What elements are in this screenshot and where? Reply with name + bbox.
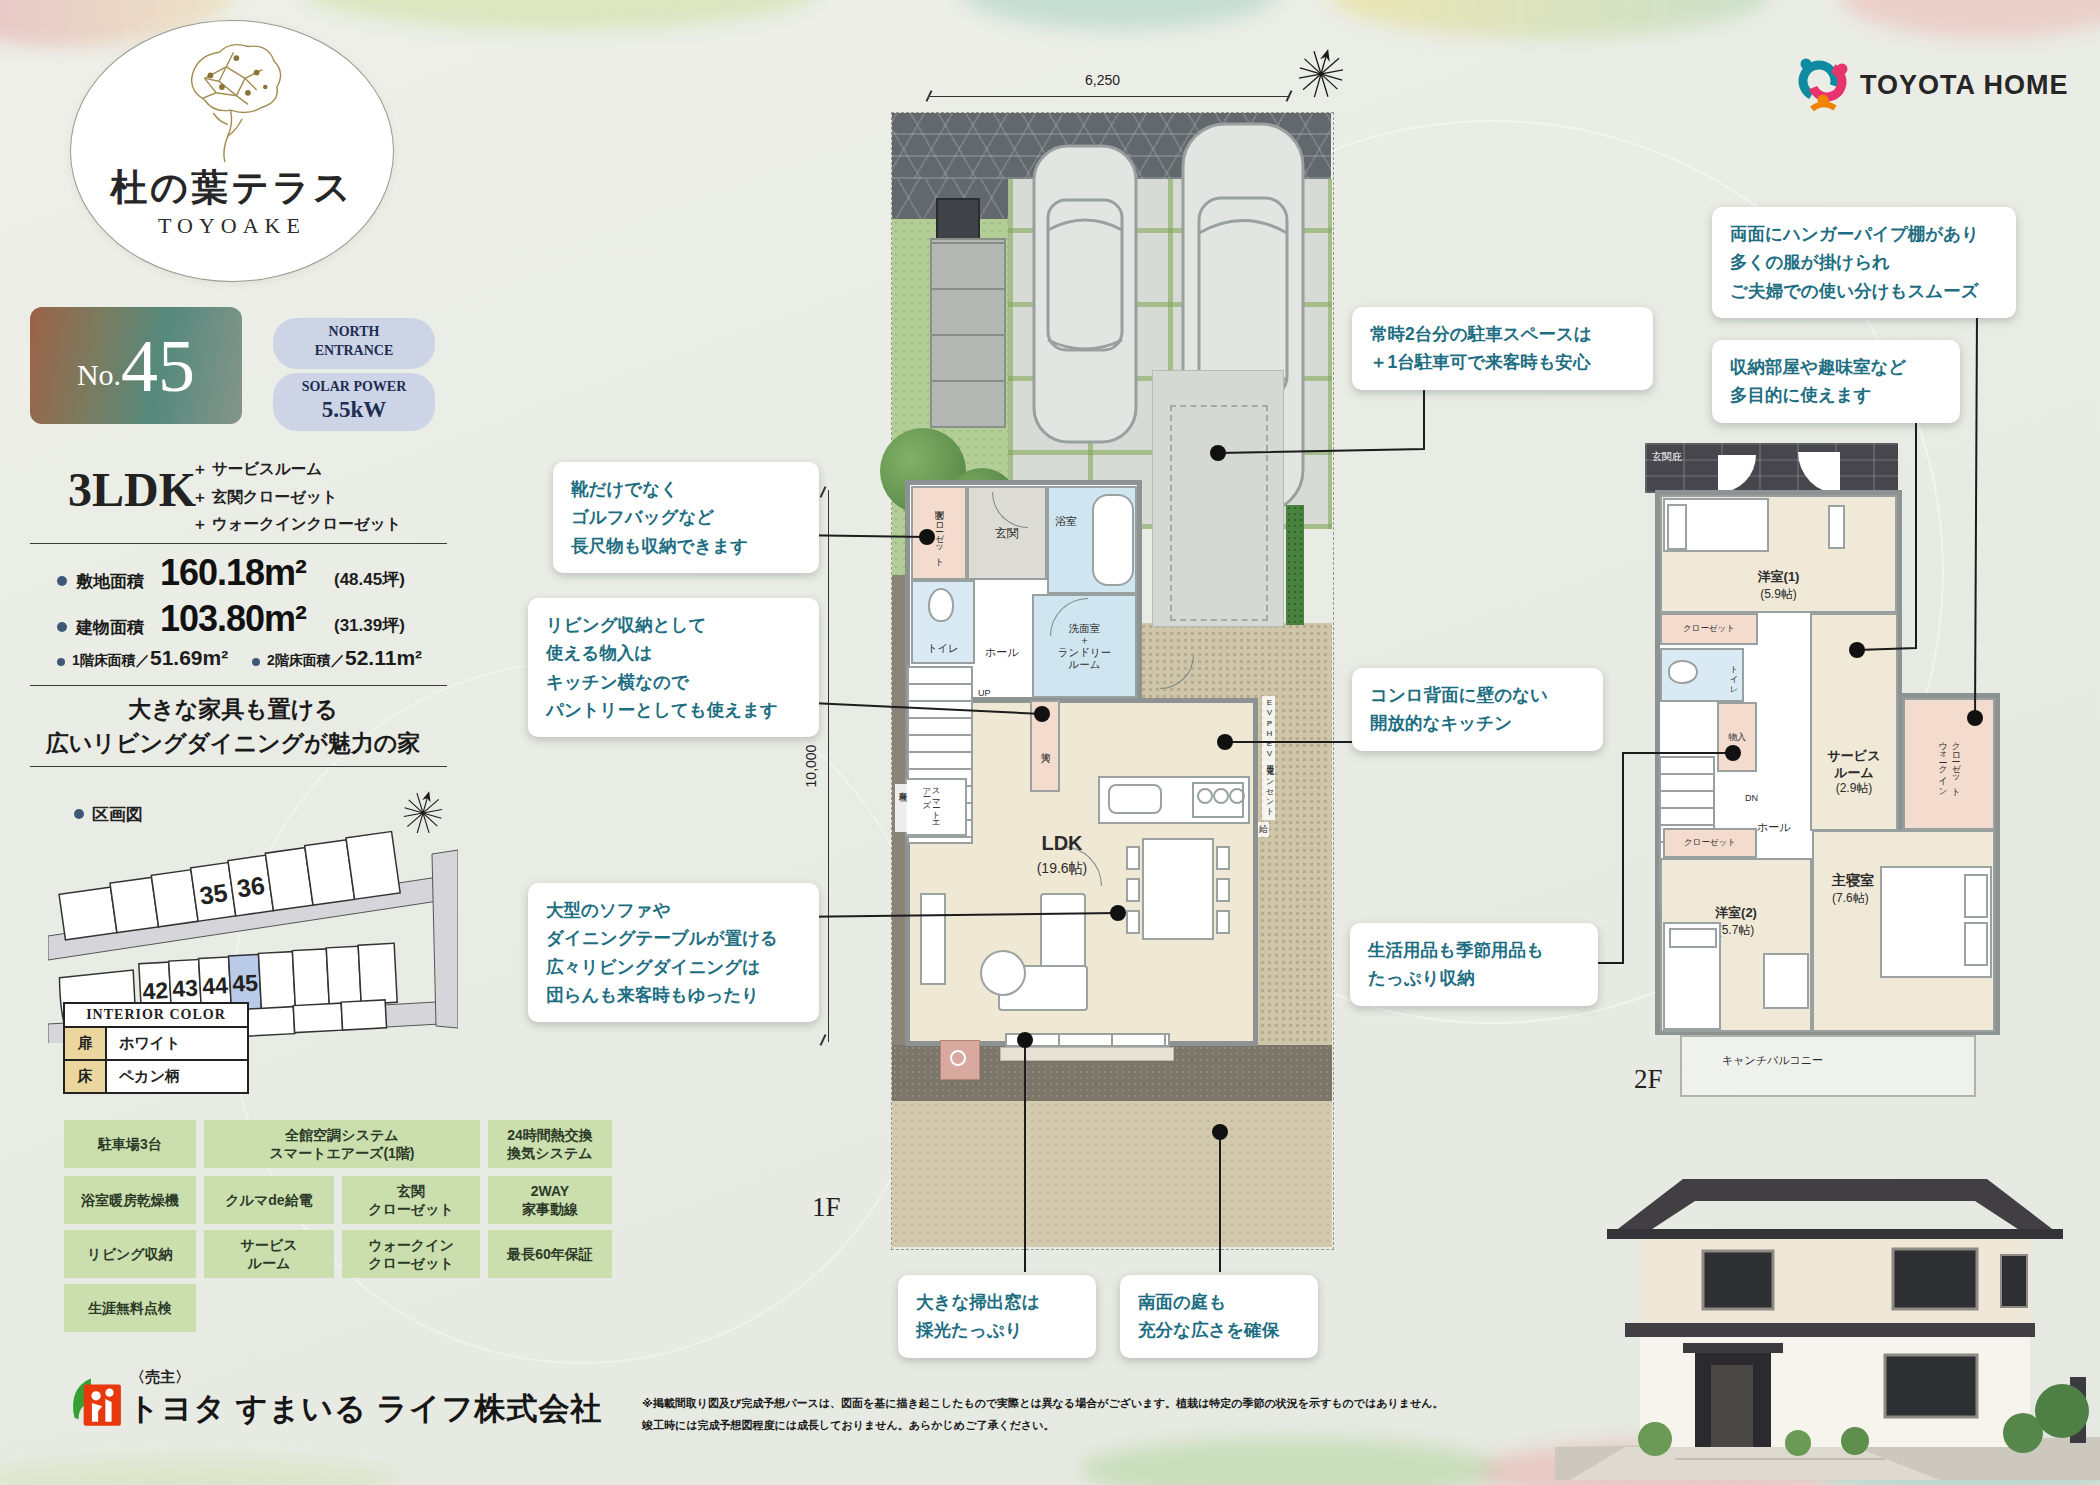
floor2-area-label: 2階床面積／ [267,652,345,670]
dim-line-top [930,96,1290,97]
room-closet2: クローゼット [1663,828,1757,858]
interior-val-floor: ペカン柄 [107,1061,247,1092]
callout-hanger-pipe: 両面にハンガーパイプ棚があり 多くの服が掛けられ ご夫婦での使い分けもスムーズ [1712,207,2016,318]
feature-text: クルマde給電 [225,1191,312,1209]
seller-label: 〈売主〉 [130,1368,190,1387]
divider [30,685,447,686]
garden-south [892,1101,1332,1247]
garden-gravel-dark [892,1045,1332,1101]
seller-company: トヨタ すまいる ライフ株式会社 [128,1388,603,1430]
planter-box [936,198,980,242]
room-label: 物入 [1728,731,1746,744]
callout-storage-2f: 生活用品も季節用品も たっぷり収納 [1350,923,1598,1006]
room-label-ldk-size: (19.6帖) [1022,860,1102,878]
feature-text: クローゼット [368,1200,454,1218]
callout-line: キッチン横なので [546,668,801,696]
project-logo-circle: 杜の葉テラス TOYOAKE [70,20,394,282]
building-area-label: 建物面積 [76,616,144,639]
floor1-area-label: 1階床面積／ [72,652,150,670]
room-label: サービス [1828,748,1881,765]
feature-text: 生涯無料点検 [88,1299,172,1317]
floor2-area-value: 52.11m² [345,646,422,670]
building-area-tsubo: (31.39坪) [334,614,405,637]
bed-single [1663,498,1769,552]
room-label: 玄関クローゼット [933,503,946,562]
watercolor-blob [0,1458,400,1485]
interior-key-floor: 床 [65,1061,107,1092]
watercolor-blob [960,0,1280,30]
callout-line: 広々リビングダイニングは [546,953,801,981]
room-label: ウォークイン [1936,735,1949,792]
flyer-page: { "colors":{"teal_text":"#1e6e82","pill_… [0,0,2100,1485]
terrace-step [1000,1047,1174,1061]
outdoor-tap-circle [950,1050,966,1066]
room-genkan-closet: 玄関クローゼット [911,486,967,580]
bullet-icon [74,809,84,819]
feature-cell: 全館空調システムスマートエアーズ(1階) [204,1120,480,1168]
room-label: (2.9帖) [1836,781,1873,797]
callout-line: ご夫婦での使い分けもスムーズ [1730,277,1998,305]
label-dn: DN [1745,793,1758,803]
road-pavement [892,179,1008,219]
callout-line: 多くの服が掛けられ [1730,248,1998,276]
feature-text: リビング収納 [87,1245,172,1263]
label-smart-airs: スマートエアーズ [922,782,941,834]
feature-cell: 駐車場3台 [64,1120,196,1168]
bed-double [1880,866,1992,978]
callout-line: 開放的なキッチン [1370,709,1585,737]
guest-parking-pad [1152,370,1284,627]
room-label: トイレ [927,642,959,656]
pill-line: 5.5kW [273,396,435,424]
floor-tag-2f: 2F [1634,1064,1663,1095]
room-label: 浴室 [1055,514,1077,529]
plan-type: 3LDK [68,462,196,517]
feature-cell: 生涯無料点検 [64,1284,196,1332]
feature-cell: サービスルーム [204,1230,334,1278]
callout-line: リビング収納として [546,611,801,639]
watercolor-blob [1480,1442,1840,1485]
dining-chair [1126,910,1140,934]
room-wic: ウォークイン クローゼット [1903,698,1995,830]
feature-text: 2WAY [531,1182,569,1200]
feature-text: ルーム [248,1254,291,1272]
callout-living-dining: 大型のソファや ダイニングテーブルが置ける 広々リビングダイニングは 団らんも来… [528,883,819,1022]
interior-val-door: ホワイト [107,1028,247,1059]
feature-cell: 浴室暖房乾燥機 [64,1176,196,1224]
feature-text: 玄関 [397,1182,425,1200]
room-closet1: クローゼット [1660,613,1758,645]
watercolor-blob [300,0,820,30]
interior-key-door: 扉 [65,1028,107,1059]
callout-line: 大型のソファや [546,896,801,924]
dim-tick [820,486,827,498]
dining-chair [1216,846,1230,870]
disclaimer-line2: 竣工時には完成予想図程度には成長しておりません。あらかじめご了承ください。 [642,1418,2072,1433]
watercolor-blob [1330,0,1770,38]
watercolor-blob [1080,1438,1500,1485]
callout-line: 南面の庭も [1138,1288,1300,1316]
room-label: (7.6帖) [1832,890,1869,907]
feature-text: スマートエアーズ(1階) [269,1144,414,1162]
dining-chair [1216,910,1230,934]
callout-service-room: 収納部屋や趣味室など 多目的に使えます [1712,340,1960,423]
lot-number: 35 [198,878,230,910]
callout-window: 大きな掃出窓は 採光たっぷり [898,1275,1096,1358]
room-label: 玄関 [995,525,1019,542]
feature-cell: 2WAY家事動線 [488,1176,612,1224]
compass-icon [1292,43,1351,106]
room-label: トイレ [1727,660,1738,690]
callout-line: 採光たっぷり [916,1316,1078,1344]
dining-chair [1126,846,1140,870]
room-label: ルーム [1834,765,1874,782]
parking-pavers [1008,179,1332,529]
bullet-icon [252,658,260,666]
room-label: (5.7帖) [1718,922,1755,939]
dim-tick [1286,90,1293,102]
room-label: 物入 [1039,745,1052,747]
unit-number-prefix: No. [77,358,121,392]
floor-tag-1f: 1F [812,1192,841,1223]
callout-line: 両面にハンガーパイプ棚があり [1730,220,1998,248]
room-label-ldk: LDK [1030,832,1094,855]
toyota-home-mark-icon [1793,52,1851,112]
callout-line: コンロ背面に壁のない [1370,681,1585,709]
feature-cell: 24時間熱交換換気システム [488,1120,612,1168]
door-arc [1160,655,1194,689]
seller-logo-icon [66,1372,122,1432]
lot-number: 45 [232,969,259,996]
unit-number-value: 45 [121,329,195,403]
label-balcony: キャンチバルコニー [1722,1053,1823,1068]
feature-cell: ウォークインクローゼット [342,1230,480,1278]
project-title: 杜の葉テラス [71,163,393,213]
car-top-view [1026,140,1144,450]
room-label: 洋室(1) [1758,568,1800,586]
label-hall-2f: ホール [1757,820,1791,835]
callout-line: ＋1台駐車可で来客時も安心 [1370,348,1635,376]
bullet-icon [57,658,65,666]
toyota-home-logotype: TOYOTA HOME [1860,70,2069,101]
feature-text: 24時間熱交換 [507,1126,593,1144]
building-area-value: 103.80m² [160,598,306,640]
bullet-icon [57,576,67,586]
dim-tick [820,1034,827,1046]
table-row: 扉 ホワイト [65,1028,247,1061]
site-area-value: 160.18m² [160,552,306,594]
feature-text: クローゼット [368,1254,454,1272]
callout-garden: 南面の庭も 充分な広さを確保 [1120,1275,1318,1358]
room-label-hall: ホール [985,645,1019,660]
room-label: (5.9帖) [1760,586,1797,603]
solar-power-pill: SOLAR POWER 5.5kW [273,373,435,431]
plan-plus-item: ＋ ウォークインクローゼット [192,510,401,538]
callout-line: 団らんも来客時もゆったり [546,981,801,1009]
feature-text: 駐車場3台 [98,1135,162,1153]
lot-number: 44 [202,972,229,999]
toilet-fixture [1668,660,1698,684]
plan-plus-item: ＋ 玄関クローゼット [192,483,401,511]
catch-copy-line1: 大きな家具も置ける [18,694,448,725]
bed-single [1663,922,1721,1030]
callout-parking: 常時2台分の駐車スペースは ＋1台駐車可で来客時も安心 [1352,307,1653,390]
kitchen-sink [1108,784,1162,814]
label-ev-outlet: EV・PHEV用充電コンセント [1262,696,1275,820]
callout-line: パントリーとしても使えます [546,696,801,724]
pill-line: ENTRANCE [273,342,435,361]
callout-line: たっぷり収納 [1368,964,1580,992]
desk [1828,505,1845,549]
porch-door-arc [1718,455,1756,493]
plot-map-label: 区画図 [92,803,143,826]
watercolor-blob [1840,0,2100,38]
label-up: UP [978,688,991,698]
callout-kitchen: コンロ背面に壁のない 開放的なキッチン [1352,668,1603,751]
kitchen-stove [1192,782,1244,818]
lot-number: 43 [172,975,199,1002]
room-label: クローゼット [1949,735,1962,792]
hedge [1286,505,1304,625]
room-label: ルーム [1069,658,1101,670]
callout-line: 多目的に使えます [1730,381,1942,409]
feature-text: ウォークイン [368,1236,454,1254]
callout-line: 収納部屋や趣味室など [1730,353,1942,381]
desk [1763,953,1809,1009]
outdoor-tap [940,1040,980,1080]
site-area-label: 敷地面積 [76,570,144,593]
lot-number: 36 [235,871,266,903]
table-row: 床 ペカン柄 [65,1061,247,1092]
round-table [980,950,1026,996]
callout-line: 大きな掃出窓は [916,1288,1078,1316]
feature-text: 全館空調システム [285,1126,398,1144]
callout-line: 常時2台分の駐車スペースは [1370,320,1635,348]
dim-line-left [828,490,829,1042]
unit-number-badge: No.45 [30,307,242,424]
dim-width-label: 6,250 [1085,72,1120,88]
callout-line: 使える物入は [546,639,801,667]
porch-door-arc [1798,452,1840,494]
callout-living-storage: リビング収納として 使える物入は キッチン横なので パントリーとしても使えます [528,598,819,737]
room-label: 主寝室 [1832,872,1874,890]
compass-icon [397,785,448,840]
room-label: クローゼット [1683,623,1735,635]
callout-line: ゴルフバッグなど [571,503,801,531]
tv-board [920,893,946,985]
toilet-fixture [928,588,954,622]
dim-height-label: 10,000 [803,745,819,788]
dining-chair [1126,878,1140,902]
room-service: サービス ルーム (2.9帖) [1810,613,1898,831]
lot-number: 42 [142,977,169,1004]
watercolor-blob [1820,1438,2100,1485]
divider [30,543,447,544]
pill-line: NORTH [273,323,435,342]
label-kyu: 給 [1258,822,1269,837]
feature-text: 最長60年保証 [507,1245,593,1263]
feature-cell: 最長60年保証 [488,1230,612,1278]
tree-logo-icon [161,35,306,165]
project-subtitle: TOYOAKE [71,213,393,239]
callout-shoe-storage: 靴だけでなく ゴルフバッグなど 長尺物も収納できます [553,462,819,573]
floor1-area-value: 51.69m² [150,646,228,670]
interior-color-table: INTERIOR COLOR 扉 ホワイト 床 ペカン柄 [63,1002,249,1094]
room-label: 洋室(2) [1715,904,1757,922]
dining-chair [1216,878,1230,902]
interior-color-title: INTERIOR COLOR [65,1004,247,1028]
bathtub [1092,494,1134,586]
callout-line: 長尺物も収納できます [571,532,801,560]
callout-line: 生活用品も季節用品も [1368,936,1580,964]
plan-plus-item: ＋ サービスルーム [192,455,401,483]
porch-roof [1645,443,1898,493]
north-entrance-pill: NORTH ENTRANCE [273,318,435,369]
dining-table [1142,838,1214,940]
room-mono-2f: 物入 [1717,702,1757,772]
road-pavement [892,113,1331,179]
feature-text: 家事動線 [522,1200,578,1218]
site-area-tsubo: (48.45坪) [334,568,405,591]
feature-cell: 玄関クローゼット [342,1176,480,1224]
room-label: クローゼット [1684,837,1736,849]
dim-tick [926,90,933,102]
divider [30,766,447,767]
bullet-icon [57,622,67,632]
plan-plus-list: ＋ サービスルーム ＋ 玄関クローゼット ＋ ウォークインクローゼット [192,455,401,538]
callout-line: 靴だけでなく [571,475,801,503]
catch-copy-line2: 広いリビングダイニングが魅力の家 [18,728,448,759]
disclaimer-line1: ※掲載間取り図及び完成予想パースは、図面を基に描き起こしたもので実際とは異なる場… [642,1396,2072,1411]
room-storage-monoire: 物入 [1030,700,1060,792]
callout-line: 充分な広さを確保 [1138,1316,1300,1344]
feature-cell: リビング収納 [64,1230,196,1278]
feature-cell: クルマde給電 [204,1176,334,1224]
callout-line: ダイニングテーブルが置ける [546,924,801,952]
guest-parking-dashed [1170,405,1268,621]
pill-line: SOLAR POWER [273,379,435,396]
label-outdoor-unit: 室外機 [895,784,908,832]
room-label: ランドリー [1058,646,1111,658]
label-porch: 玄関庇 [1652,450,1682,464]
feature-text: サービス [241,1236,298,1254]
approach-tiles [930,238,1006,428]
car-top-view [1175,118,1311,518]
feature-text: 浴室暖房乾燥機 [81,1191,179,1209]
feature-text: 換気システム [507,1144,592,1162]
